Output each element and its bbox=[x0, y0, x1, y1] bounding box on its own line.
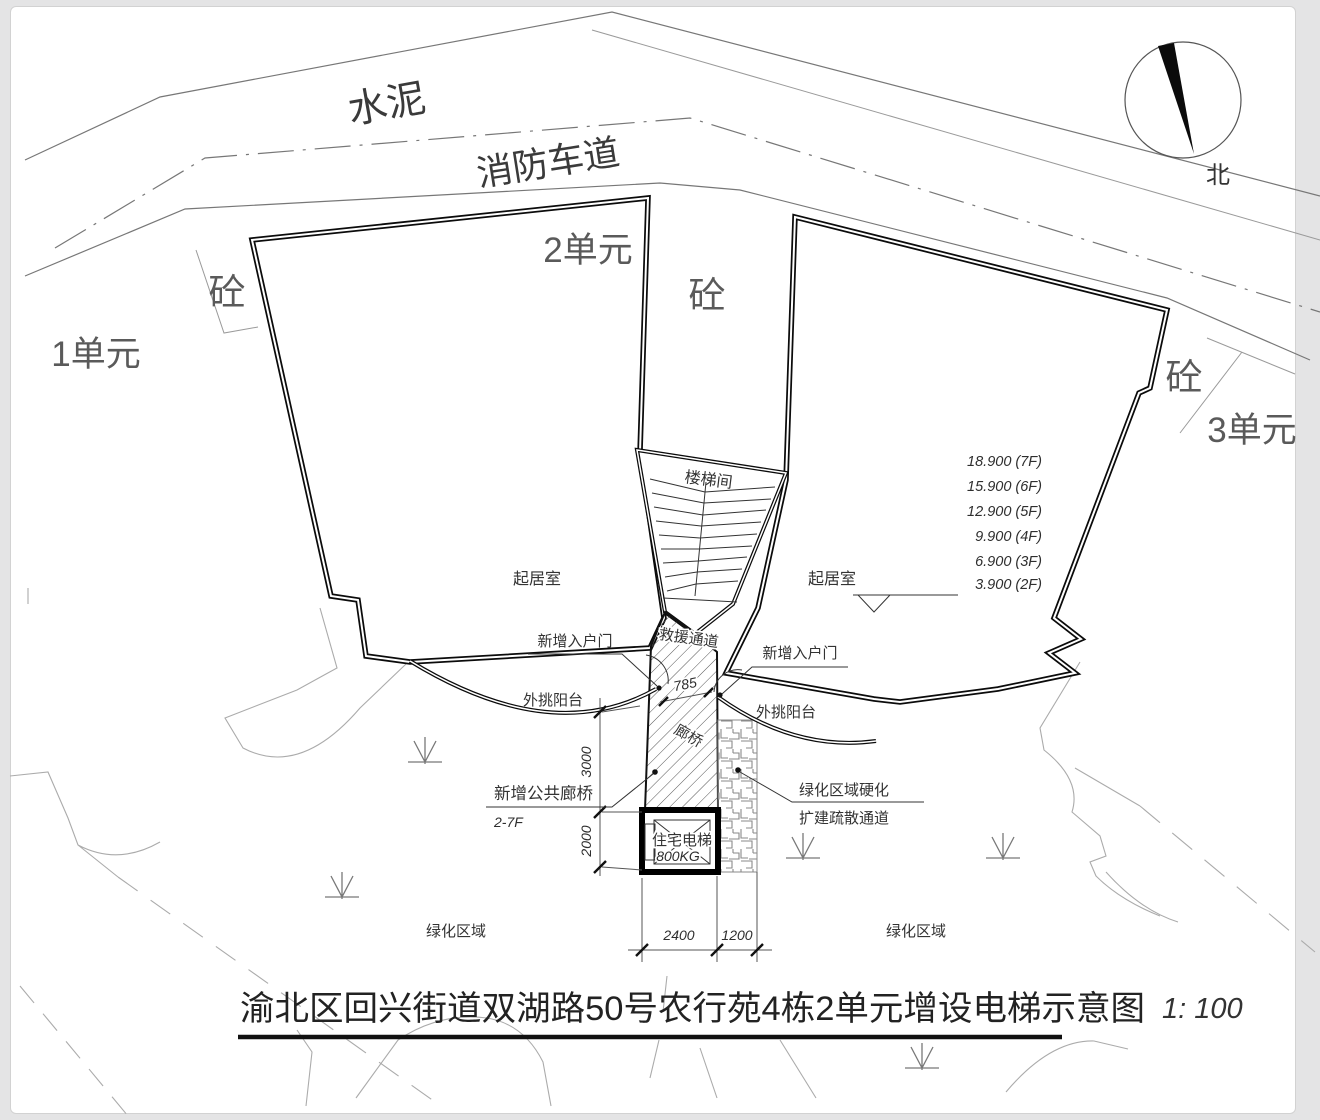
green-harden-dot bbox=[735, 767, 741, 773]
drawing-title: 渝北区回兴街道双湖路50号农行苑4栋2单元增设电梯示意图 bbox=[240, 990, 1145, 1028]
north-compass: 北 bbox=[1125, 42, 1241, 189]
public-bridge-label: 新增公共廊桥 bbox=[494, 784, 593, 803]
dim-shaft-depth: 2000 bbox=[578, 825, 594, 857]
hardened-paving-strip bbox=[718, 720, 757, 872]
balcony-right-label: 外挑阳台 bbox=[756, 704, 816, 721]
level-6f: 15.900 (6F) bbox=[967, 479, 1042, 495]
buildings bbox=[252, 198, 1167, 702]
fire-lane-label: 消防车道 bbox=[474, 131, 623, 194]
unit2-label: 2单元 bbox=[543, 231, 632, 270]
site-line bbox=[10, 588, 160, 877]
road-labels: 水泥 消防车道 bbox=[345, 77, 623, 194]
level-3f: 6.900 (3F) bbox=[975, 554, 1042, 570]
door-left-dot bbox=[656, 685, 661, 690]
door-left-label: 新增入户门 bbox=[537, 633, 612, 650]
site-line bbox=[1006, 1041, 1128, 1092]
elevator-load-label: 800KG bbox=[656, 848, 700, 864]
plant-icon bbox=[325, 872, 359, 899]
balcony-left-label: 外挑阳台 bbox=[523, 692, 583, 709]
site-line-dashed bbox=[20, 986, 128, 1116]
drawing-scale: 1: 100 bbox=[1162, 993, 1243, 1025]
plant-icon bbox=[905, 1043, 939, 1070]
green-harden-label2: 扩建疏散通道 bbox=[799, 810, 889, 827]
site-line bbox=[1040, 662, 1160, 916]
floors-range-label: 2-7F bbox=[493, 814, 524, 830]
road-surface-label: 水泥 bbox=[345, 77, 429, 133]
green-area-left-label: 绿化区域 bbox=[426, 923, 486, 940]
road-edge-upper bbox=[25, 12, 1320, 196]
title-block: 渝北区回兴街道双湖路50号农行苑4栋2单元增设电梯示意图 1: 100 bbox=[238, 990, 1243, 1037]
site-plan-svg: 2400 1200 3000 2000 785 18.900 (7F) 15.9… bbox=[0, 0, 1320, 1120]
plant-icon bbox=[786, 833, 820, 860]
level-2f: 3.900 (2F) bbox=[975, 577, 1042, 593]
plant-icon bbox=[986, 833, 1020, 860]
bottom-dim-lines bbox=[628, 872, 772, 962]
level-7f: 18.900 (7F) bbox=[967, 454, 1042, 470]
north-needle-icon bbox=[1158, 43, 1194, 154]
unit1-label: 1单元 bbox=[51, 335, 140, 374]
level-4f: 9.900 (4F) bbox=[975, 529, 1042, 545]
road-edge-second bbox=[592, 30, 1320, 240]
drawing-canvas: 2400 1200 3000 2000 785 18.900 (7F) 15.9… bbox=[0, 0, 1320, 1120]
left-dim-lines bbox=[600, 698, 642, 876]
unit3-label: 3单元 bbox=[1207, 411, 1296, 450]
dim-paving-width: 1200 bbox=[721, 927, 752, 943]
living-room-right-label: 起居室 bbox=[808, 570, 856, 588]
concrete-label-3: 砼 bbox=[1166, 357, 1203, 398]
door-right-label: 新增入户门 bbox=[762, 645, 837, 662]
public-bridge-dot bbox=[652, 769, 658, 775]
living-room-left-label: 起居室 bbox=[513, 570, 561, 588]
level-5f: 12.900 (5F) bbox=[967, 504, 1042, 520]
dim-shaft-width: 2400 bbox=[662, 927, 694, 943]
site-line-dashed bbox=[1140, 806, 1315, 952]
elevator-name-label: 住宅电梯 bbox=[652, 832, 712, 849]
concrete-label-2: 砼 bbox=[689, 275, 726, 316]
green-harden-label1: 绿化区域硬化 bbox=[799, 782, 889, 799]
plant-icon bbox=[408, 737, 442, 764]
door-right-dot bbox=[717, 692, 722, 697]
north-label: 北 bbox=[1206, 162, 1230, 189]
door-left-leader bbox=[528, 654, 657, 686]
concrete-label-1: 砼 bbox=[209, 272, 246, 313]
site-line bbox=[297, 1017, 551, 1106]
dim-bridge-length: 3000 bbox=[578, 746, 594, 777]
green-area-right-label: 绿化区域 bbox=[886, 923, 946, 940]
